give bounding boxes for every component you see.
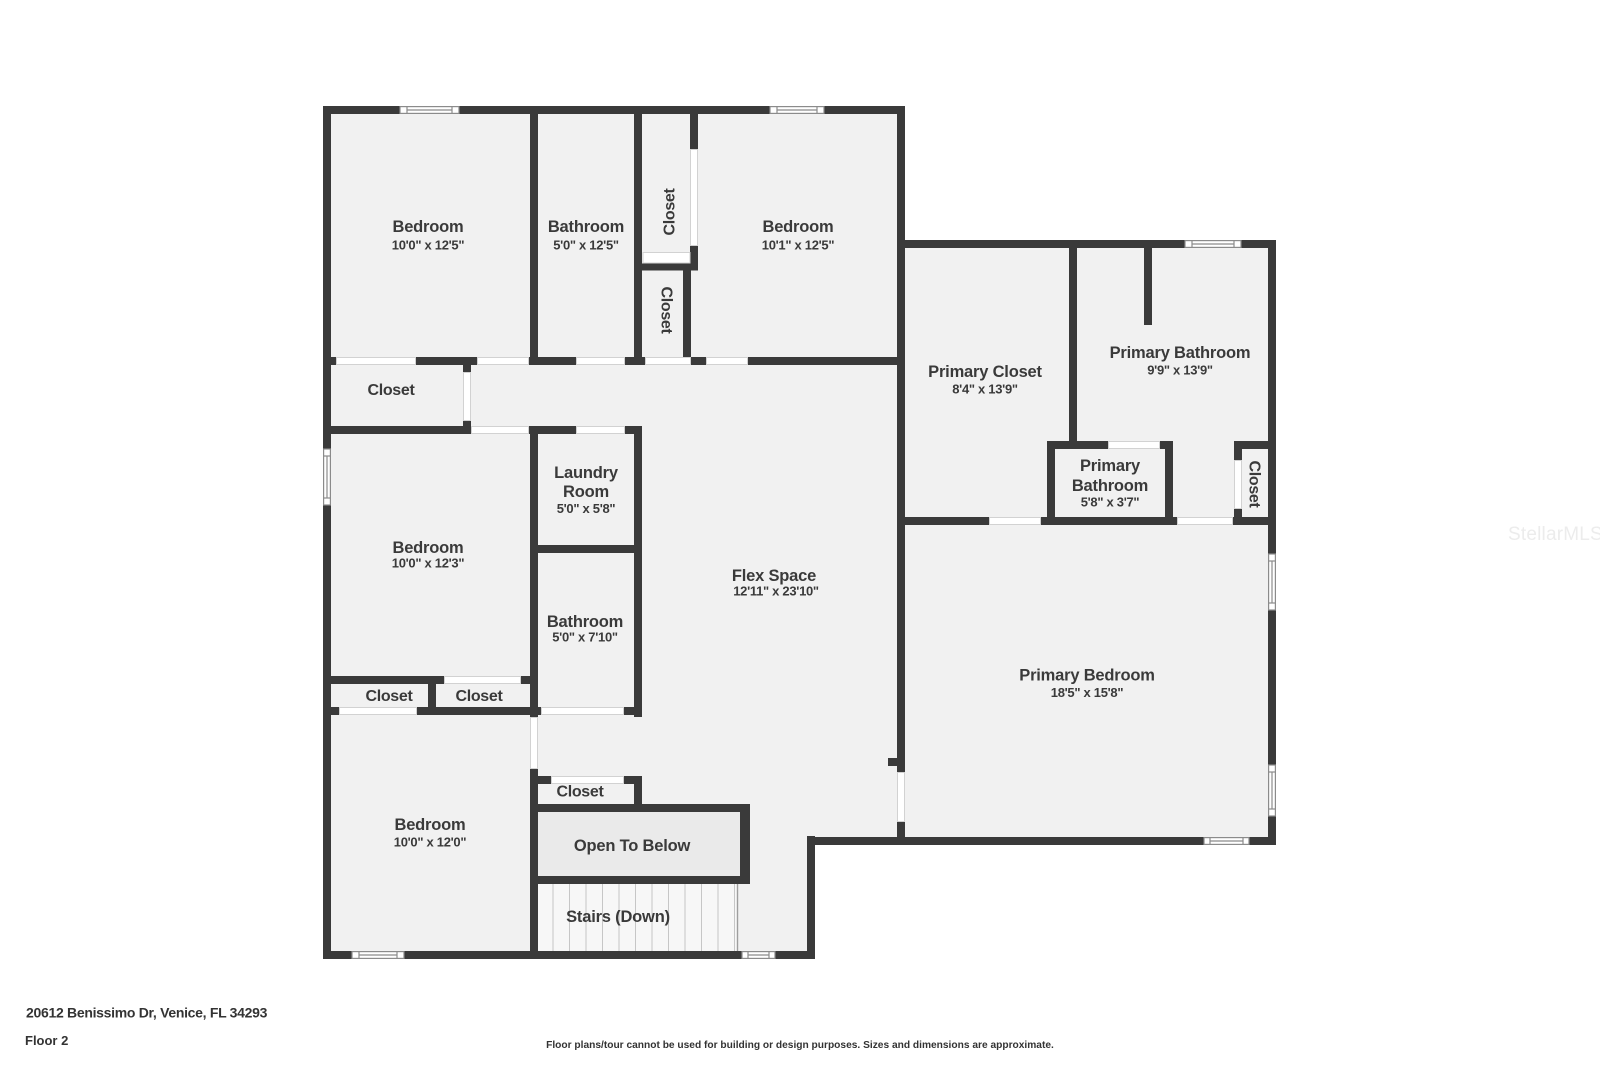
svg-text:Laundry: Laundry bbox=[554, 464, 619, 482]
svg-text:20612 Benissimo Dr, Venice, FL: 20612 Benissimo Dr, Venice, FL 34293 bbox=[26, 1005, 268, 1021]
svg-text:Closet: Closet bbox=[367, 382, 415, 399]
svg-text:10'0" x 12'0": 10'0" x 12'0" bbox=[394, 835, 467, 850]
svg-text:Room: Room bbox=[563, 483, 609, 501]
svg-text:Primary Closet: Primary Closet bbox=[928, 363, 1042, 381]
svg-text:5'0" x 12'5": 5'0" x 12'5" bbox=[553, 238, 619, 253]
svg-text:12'11" x 23'10": 12'11" x 23'10" bbox=[733, 584, 819, 599]
svg-text:Primary: Primary bbox=[1080, 457, 1141, 475]
svg-text:Closet: Closet bbox=[365, 688, 413, 705]
svg-text:8'4" x 13'9": 8'4" x 13'9" bbox=[952, 382, 1018, 397]
svg-text:Bathroom: Bathroom bbox=[1072, 477, 1148, 495]
svg-text:StellarMLS: StellarMLS bbox=[1508, 524, 1600, 545]
svg-text:Closet: Closet bbox=[556, 784, 604, 801]
svg-text:Bathroom: Bathroom bbox=[548, 218, 624, 236]
svg-text:Open To Below: Open To Below bbox=[574, 837, 691, 855]
svg-text:Primary Bathroom: Primary Bathroom bbox=[1110, 344, 1251, 362]
svg-text:5'0" x 5'8": 5'0" x 5'8" bbox=[557, 501, 616, 516]
svg-text:Stairs (Down): Stairs (Down) bbox=[566, 908, 670, 926]
svg-text:Closet: Closet bbox=[1246, 460, 1263, 508]
svg-text:10'0" x 12'3": 10'0" x 12'3" bbox=[392, 556, 465, 571]
svg-text:Closet: Closet bbox=[455, 688, 503, 705]
svg-text:Bedroom: Bedroom bbox=[762, 218, 833, 236]
svg-text:Bathroom: Bathroom bbox=[547, 613, 623, 631]
svg-text:10'0" x 12'5": 10'0" x 12'5" bbox=[392, 238, 465, 253]
svg-text:Bedroom: Bedroom bbox=[394, 816, 465, 834]
svg-text:9'9" x 13'9": 9'9" x 13'9" bbox=[1147, 363, 1213, 378]
svg-text:5'0" x 7'10": 5'0" x 7'10" bbox=[552, 630, 618, 645]
svg-text:10'1" x 12'5": 10'1" x 12'5" bbox=[762, 238, 835, 253]
svg-text:18'5" x 15'8": 18'5" x 15'8" bbox=[1051, 685, 1124, 700]
svg-text:Closet: Closet bbox=[661, 187, 678, 235]
svg-text:Bedroom: Bedroom bbox=[392, 539, 463, 557]
svg-text:Flex Space: Flex Space bbox=[732, 567, 816, 585]
svg-text:Floor 2: Floor 2 bbox=[25, 1033, 68, 1048]
svg-text:Closet: Closet bbox=[658, 286, 675, 334]
svg-text:Floor plans/tour cannot be use: Floor plans/tour cannot be used for buil… bbox=[546, 1040, 1054, 1051]
svg-text:5'8" x 3'7": 5'8" x 3'7" bbox=[1081, 495, 1140, 510]
svg-text:Primary Bedroom: Primary Bedroom bbox=[1019, 667, 1154, 685]
svg-text:Bedroom: Bedroom bbox=[392, 218, 463, 236]
